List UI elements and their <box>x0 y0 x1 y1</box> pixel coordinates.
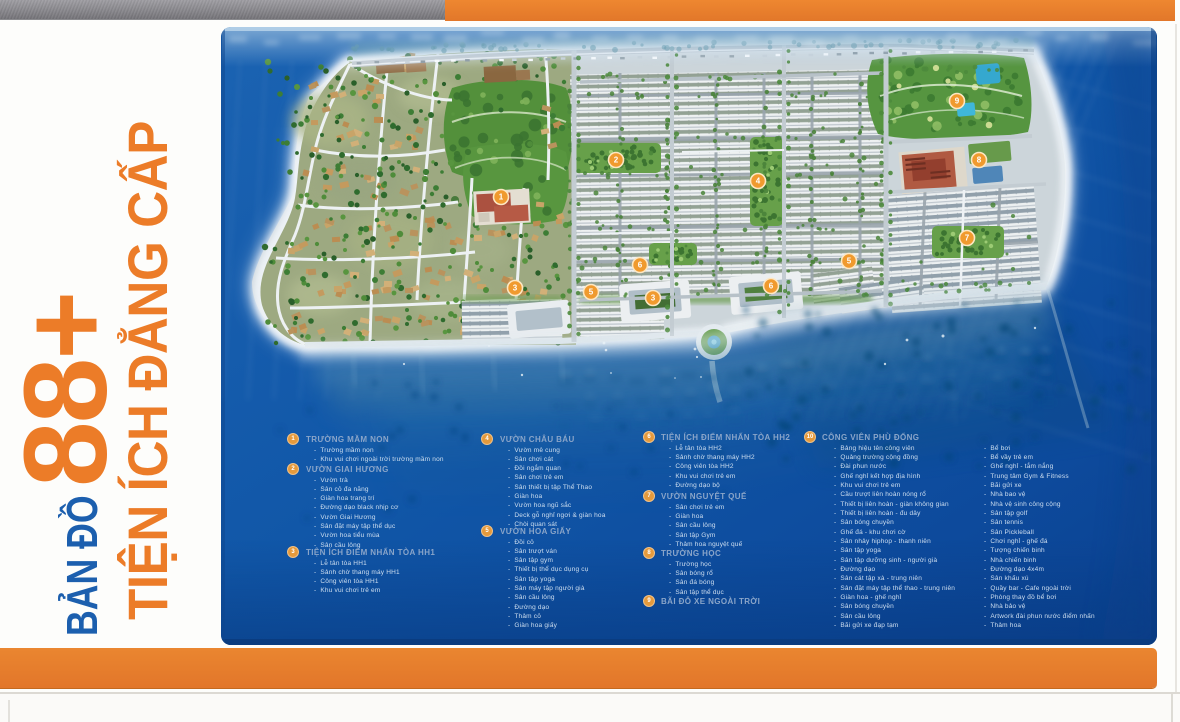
svg-text:1: 1 <box>499 193 504 202</box>
svg-text:5: 5 <box>589 288 594 297</box>
svg-text:8: 8 <box>977 156 982 165</box>
svg-text:7: 7 <box>965 234 970 243</box>
svg-text:5: 5 <box>847 257 852 266</box>
svg-text:4: 4 <box>756 177 761 186</box>
svg-text:2: 2 <box>614 156 619 165</box>
svg-text:6: 6 <box>638 261 643 270</box>
svg-text:6: 6 <box>769 282 774 291</box>
svg-text:3: 3 <box>651 294 656 303</box>
svg-text:3: 3 <box>513 284 518 293</box>
svg-text:9: 9 <box>955 97 960 106</box>
